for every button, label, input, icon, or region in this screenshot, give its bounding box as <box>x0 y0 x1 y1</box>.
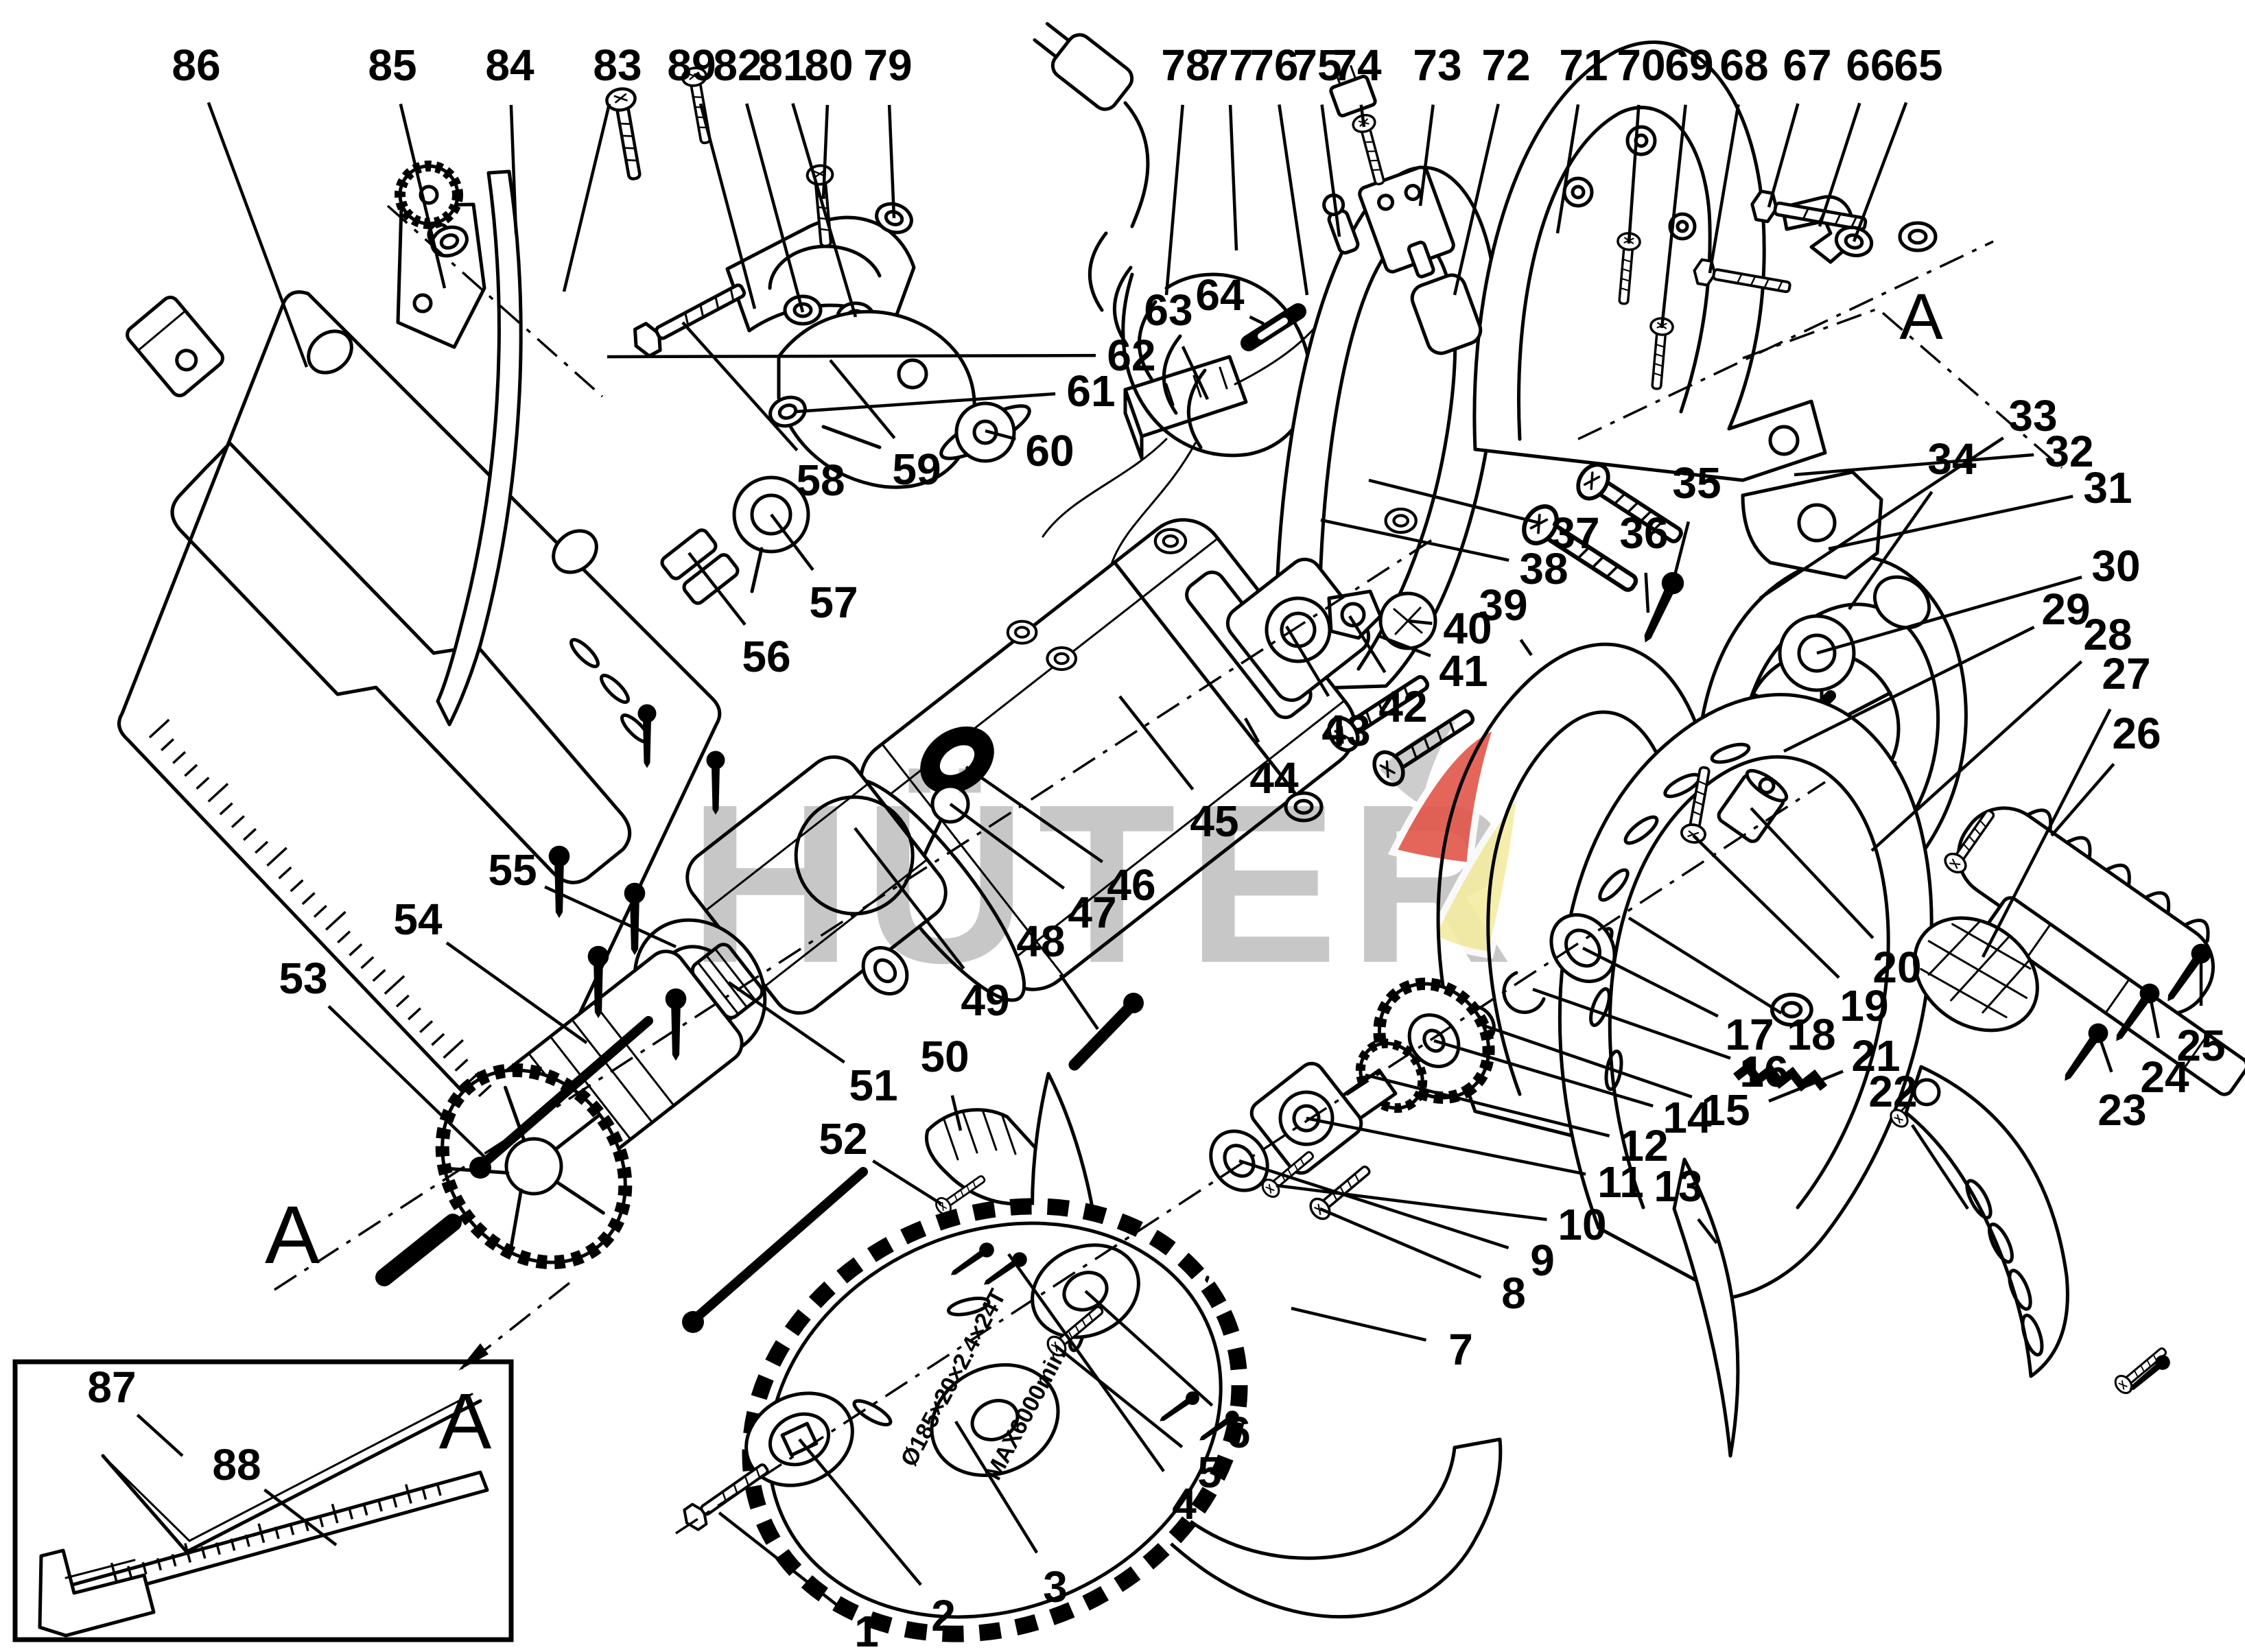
part-callout-84: 84 <box>485 40 534 90</box>
leader-line-39 <box>1520 640 1531 655</box>
leader-line-83 <box>564 104 609 292</box>
part-callout-83: 83 <box>593 40 642 90</box>
leader-line-36 <box>1646 573 1648 613</box>
part-callout-45: 45 <box>1190 796 1238 846</box>
leader-line-8 <box>1320 1209 1481 1277</box>
part-callout-55: 55 <box>488 845 537 895</box>
leader-line-79 <box>889 105 894 218</box>
part-callout-37: 37 <box>1551 508 1599 558</box>
part-callout-89: 89 <box>667 40 716 90</box>
part-callout-71: 71 <box>1559 40 1608 90</box>
watermark: HÜTER <box>689 716 1524 1010</box>
leader-line-76 <box>1279 104 1307 295</box>
part-callout-23: 23 <box>2097 1085 2146 1135</box>
part-callout-9: 9 <box>1530 1236 1555 1285</box>
view-marker-2: A <box>265 1189 320 1281</box>
exploded-view-diagram: Ø185×20×2.4×24T MAX6000min <box>0 0 2245 1652</box>
leader-line-9 <box>1239 1161 1509 1248</box>
part-callout-30: 30 <box>2091 541 2140 591</box>
leader-line-89 <box>701 104 755 309</box>
part-callout-66: 66 <box>1846 40 1894 90</box>
part-callout-6: 6 <box>1226 1408 1251 1457</box>
part-callout-85: 85 <box>368 40 416 90</box>
part-callout-80: 80 <box>804 40 853 90</box>
part-callout-18: 18 <box>1787 1010 1835 1059</box>
leader-line-52 <box>873 1161 941 1204</box>
part-callout-79: 79 <box>863 40 912 90</box>
part-callout-88: 88 <box>212 1440 261 1489</box>
part-callout-73: 73 <box>1413 40 1461 90</box>
part-callout-54: 54 <box>393 895 443 944</box>
part-callout-51: 51 <box>849 1061 897 1110</box>
part-callout-14: 14 <box>1662 1093 1712 1142</box>
part-callout-7: 7 <box>1448 1325 1473 1374</box>
part-callout-1: 1 <box>854 1607 879 1652</box>
part-callout-53: 53 <box>279 954 327 1003</box>
part-callout-44: 44 <box>1249 753 1299 803</box>
part-callout-49: 49 <box>961 976 1009 1025</box>
part-callout-65: 65 <box>1894 40 1942 90</box>
part-callout-4: 4 <box>1172 1479 1197 1529</box>
part-callout-58: 58 <box>796 456 845 505</box>
view-marker-3: A <box>439 1378 492 1465</box>
part-callout-35: 35 <box>1672 458 1721 508</box>
view-marker-1: A <box>1899 281 1943 353</box>
leader-line-32 <box>1794 455 2034 475</box>
leader-line-65 <box>1854 102 1906 241</box>
leader-line-77 <box>1230 105 1236 250</box>
part-callout-67: 67 <box>1783 40 1831 90</box>
part-callout-70: 70 <box>1617 40 1665 90</box>
part-callout-60: 60 <box>1025 426 1074 475</box>
part-callout-59: 59 <box>892 445 941 494</box>
part-callout-46: 46 <box>1107 860 1155 910</box>
part-callout-57: 57 <box>809 578 858 627</box>
part-callout-50: 50 <box>920 1032 969 1081</box>
part-callout-76: 76 <box>1249 40 1298 90</box>
part-callout-68: 68 <box>1719 40 1768 90</box>
part-callout-69: 69 <box>1665 40 1713 90</box>
part-callout-27: 27 <box>2102 649 2150 698</box>
leader-line-67 <box>1769 104 1798 207</box>
part-callout-82: 82 <box>713 40 762 90</box>
part-callout-61: 61 <box>1066 366 1115 416</box>
part-callout-87: 87 <box>87 1362 136 1412</box>
leader-line-64 <box>1249 317 1264 324</box>
parts-diagram-page: Ø185×20×2.4×24T MAX6000min <box>0 0 2245 1652</box>
leader-line-86 <box>209 102 307 367</box>
part-callout-26: 26 <box>2112 709 2161 758</box>
part-callout-86: 86 <box>172 40 220 90</box>
leader-line-62 <box>607 355 1096 357</box>
leader-line-26 <box>2052 764 2114 836</box>
part-callout-63: 63 <box>1144 285 1192 335</box>
part-callout-48: 48 <box>1016 917 1065 966</box>
part-callout-81: 81 <box>758 40 807 90</box>
part-callout-74: 74 <box>1332 40 1382 90</box>
part-callout-5: 5 <box>1197 1448 1222 1497</box>
part-callout-72: 72 <box>1481 40 1530 90</box>
part-callout-42: 42 <box>1378 682 1427 731</box>
part-callout-56: 56 <box>742 632 790 681</box>
part-callout-41: 41 <box>1439 646 1488 696</box>
part-callout-77: 77 <box>1204 40 1253 90</box>
leader-line-78 <box>1166 105 1183 295</box>
part-callout-64: 64 <box>1195 270 1245 320</box>
part-callout-43: 43 <box>1321 706 1370 755</box>
part-callout-10: 10 <box>1558 1200 1606 1249</box>
part-callout-78: 78 <box>1161 40 1210 90</box>
part-callout-36: 36 <box>1619 508 1668 558</box>
leader-line-7 <box>1291 1308 1426 1340</box>
part-callout-2: 2 <box>931 1591 956 1640</box>
part-callout-3: 3 <box>1043 1562 1068 1612</box>
part-callout-31: 31 <box>2083 463 2132 512</box>
part-callout-21: 21 <box>1851 1031 1900 1081</box>
part-callout-52: 52 <box>819 1114 867 1164</box>
part-callout-24: 24 <box>2140 1052 2189 1102</box>
part-callout-19: 19 <box>1840 981 1888 1030</box>
part-callout-8: 8 <box>1501 1268 1526 1318</box>
